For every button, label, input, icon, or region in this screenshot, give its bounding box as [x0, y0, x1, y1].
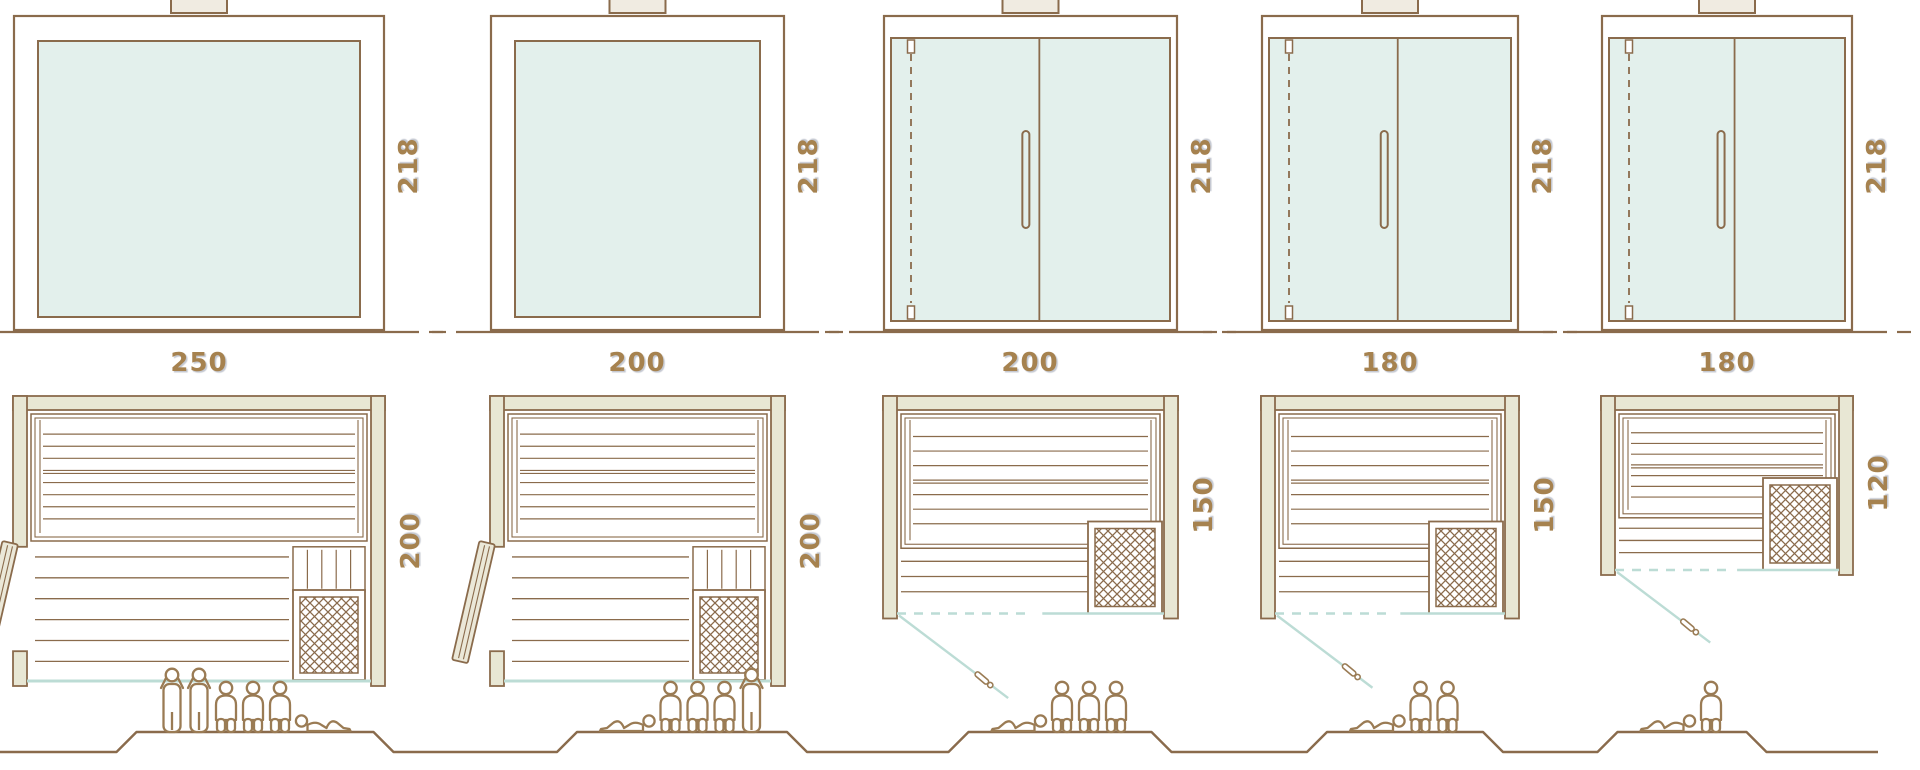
sauna-column-1: 218 250 200	[0, 0, 1920, 770]
sauna-column-4: 218 180 150	[0, 0, 1920, 770]
sauna-5-floor-plan-drawing	[1591, 396, 1863, 706]
sauna-column-2: 218 200 200	[0, 0, 1920, 770]
sauna-2-elevation-drawing	[446, 0, 829, 340]
sauna-4-elevation-drawing	[1217, 0, 1563, 340]
sauna-2-width-label: 200	[567, 348, 707, 378]
sauna-1-height-label: 218	[393, 121, 425, 211]
sauna-2-floor-plan-drawing	[480, 396, 795, 706]
sauna-1-depth-label: 200	[395, 496, 427, 586]
sauna-5-height-label: 218	[1861, 121, 1893, 211]
sauna-4-width-label: 180	[1320, 348, 1460, 378]
capacity-figures-strip	[0, 688, 1920, 770]
sauna-size-comparison-diagram: { "diagram": { "type": "sauna-size-compa…	[0, 0, 1920, 770]
sauna-1-floor-plan-drawing	[3, 396, 395, 706]
sauna-3-depth-label: 150	[1188, 460, 1220, 550]
sauna-5-elevation-drawing	[1557, 0, 1897, 340]
sauna-1-width-label: 250	[129, 348, 269, 378]
sauna-5-width-label: 180	[1657, 348, 1797, 378]
sauna-column-5: 218 180 120	[0, 0, 1920, 770]
sauna-column-3: 218 200 150	[0, 0, 1920, 770]
sauna-4-floor-plan-drawing	[1251, 396, 1529, 706]
sauna-2-depth-label: 200	[795, 496, 827, 586]
sauna-4-depth-label: 150	[1529, 460, 1561, 550]
sauna-2-height-label: 218	[793, 121, 825, 211]
sauna-5-depth-label: 120	[1863, 438, 1895, 528]
sauna-3-elevation-drawing	[839, 0, 1222, 340]
sauna-3-floor-plan-drawing	[873, 396, 1188, 706]
sauna-3-height-label: 218	[1186, 121, 1218, 211]
sauna-4-height-label: 218	[1527, 121, 1559, 211]
sauna-1-elevation-drawing	[0, 0, 429, 340]
sauna-3-width-label: 200	[960, 348, 1100, 378]
